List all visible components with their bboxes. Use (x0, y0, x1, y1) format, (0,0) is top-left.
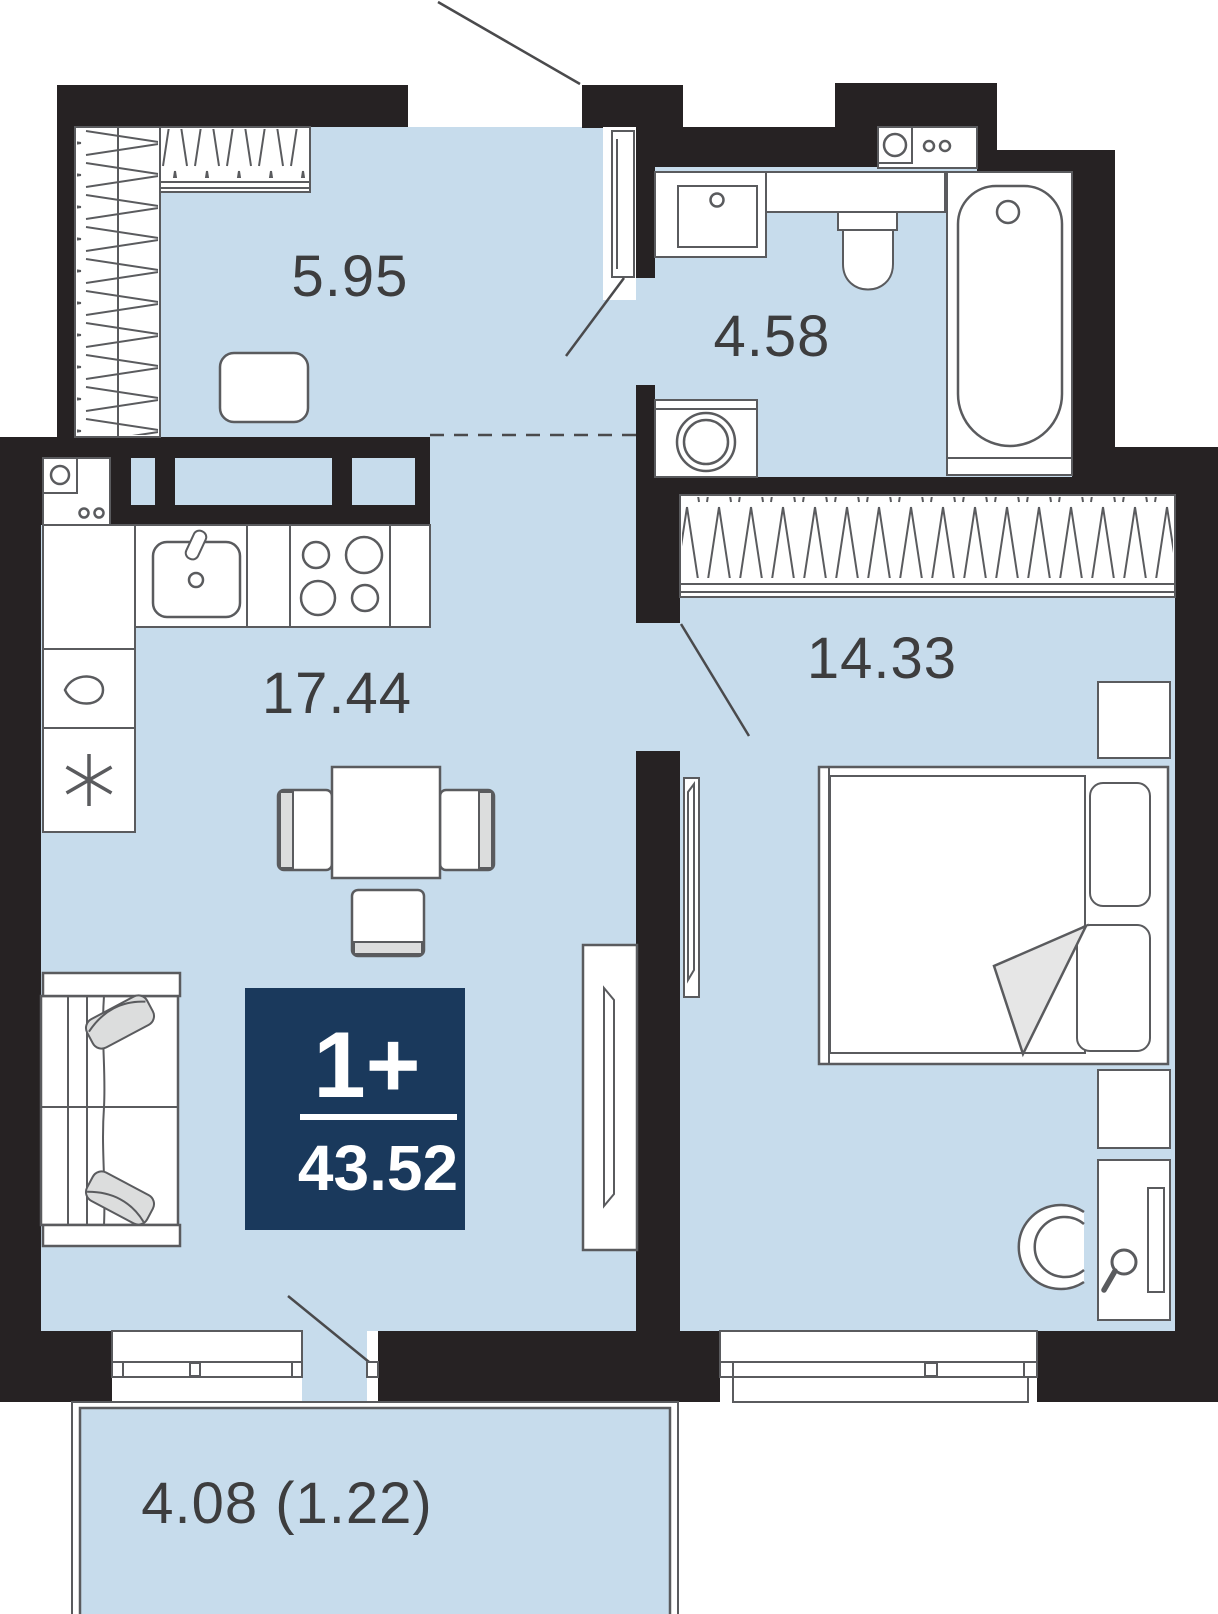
wall-bath-bottom (636, 477, 1115, 495)
badge-divider (300, 1114, 457, 1120)
pillow-icon (1090, 783, 1150, 906)
bathroom-area-label: 4.58 (714, 304, 831, 369)
sofa-icon (41, 973, 180, 1246)
balcony-door-opening (302, 1331, 367, 1402)
balcony-door-jamb (367, 1362, 378, 1377)
pouf-icon (220, 353, 308, 422)
bedroom-door-opening (636, 623, 680, 751)
nightstand-icon (1098, 1070, 1170, 1148)
wall-bottom-bedroom-left (680, 1331, 720, 1402)
kitchen-counter (135, 525, 430, 627)
wall-bath-right (1072, 170, 1115, 477)
bathtub-icon (947, 172, 1072, 475)
bedroom-area-label: 14.33 (807, 626, 957, 691)
wall-living-bedroom-upper (636, 495, 680, 623)
window-recess (720, 1331, 1037, 1362)
desk-icon (1098, 1160, 1170, 1320)
dining-table-icon (332, 767, 440, 878)
area-badge: 1+ 43.52 (245, 988, 465, 1230)
hallway-area-label: 5.95 (292, 244, 409, 309)
floor-plan: 5.95 4.58 17.44 14.33 4.08 (1.22) 1+ 43.… (0, 0, 1218, 1614)
kitchen-cabinet (43, 525, 135, 649)
wall-corner-band (1072, 447, 1218, 495)
wall-entry-block (582, 85, 683, 128)
living-balcony-window (112, 1331, 302, 1377)
wall-bath-top-right (977, 150, 1115, 172)
wall-left-outer (0, 438, 41, 1402)
bathroom-counter (766, 172, 945, 212)
wall-bedroom-right (1175, 495, 1218, 1402)
bed-icon (819, 767, 1168, 1064)
wall-bottom-bedroom-right (1037, 1331, 1218, 1402)
toilet-icon (838, 212, 897, 290)
tv-icon (604, 988, 614, 1206)
wall-living-bedroom-lower (636, 751, 680, 1402)
wall-bottom-left (0, 1331, 112, 1402)
window-sill (720, 1362, 1037, 1377)
badge-total-area: 43.52 (298, 1132, 458, 1204)
floor-plan-page: 5.95 4.58 17.44 14.33 4.08 (1.22) 1+ 43.… (0, 0, 1218, 1614)
bathroom-door-leaf (612, 131, 634, 277)
balcony-area-label: 4.08 (1.22) (141, 1471, 433, 1536)
kitchen-living-area-label: 17.44 (262, 661, 412, 726)
wall-hallway-top (57, 85, 408, 127)
pillow-icon (1077, 925, 1150, 1051)
wall-hall-bath-lower (636, 385, 655, 477)
window-outer-sill (733, 1377, 1028, 1402)
wall-hallway-left (57, 85, 75, 437)
boiler-icon (878, 127, 977, 168)
entry-door-swing (438, 2, 580, 84)
window-recess (112, 1331, 302, 1362)
kettle-icon (43, 649, 135, 728)
wall-bottom-mid (378, 1331, 636, 1402)
bedroom-window (720, 1331, 1037, 1402)
nightstand-icon (1098, 682, 1170, 758)
badge-rooms-label: 1+ (313, 1012, 420, 1117)
wall-hall-bath-upper (636, 127, 655, 278)
window-sill (112, 1362, 302, 1377)
washing-machine-icon (655, 400, 757, 477)
